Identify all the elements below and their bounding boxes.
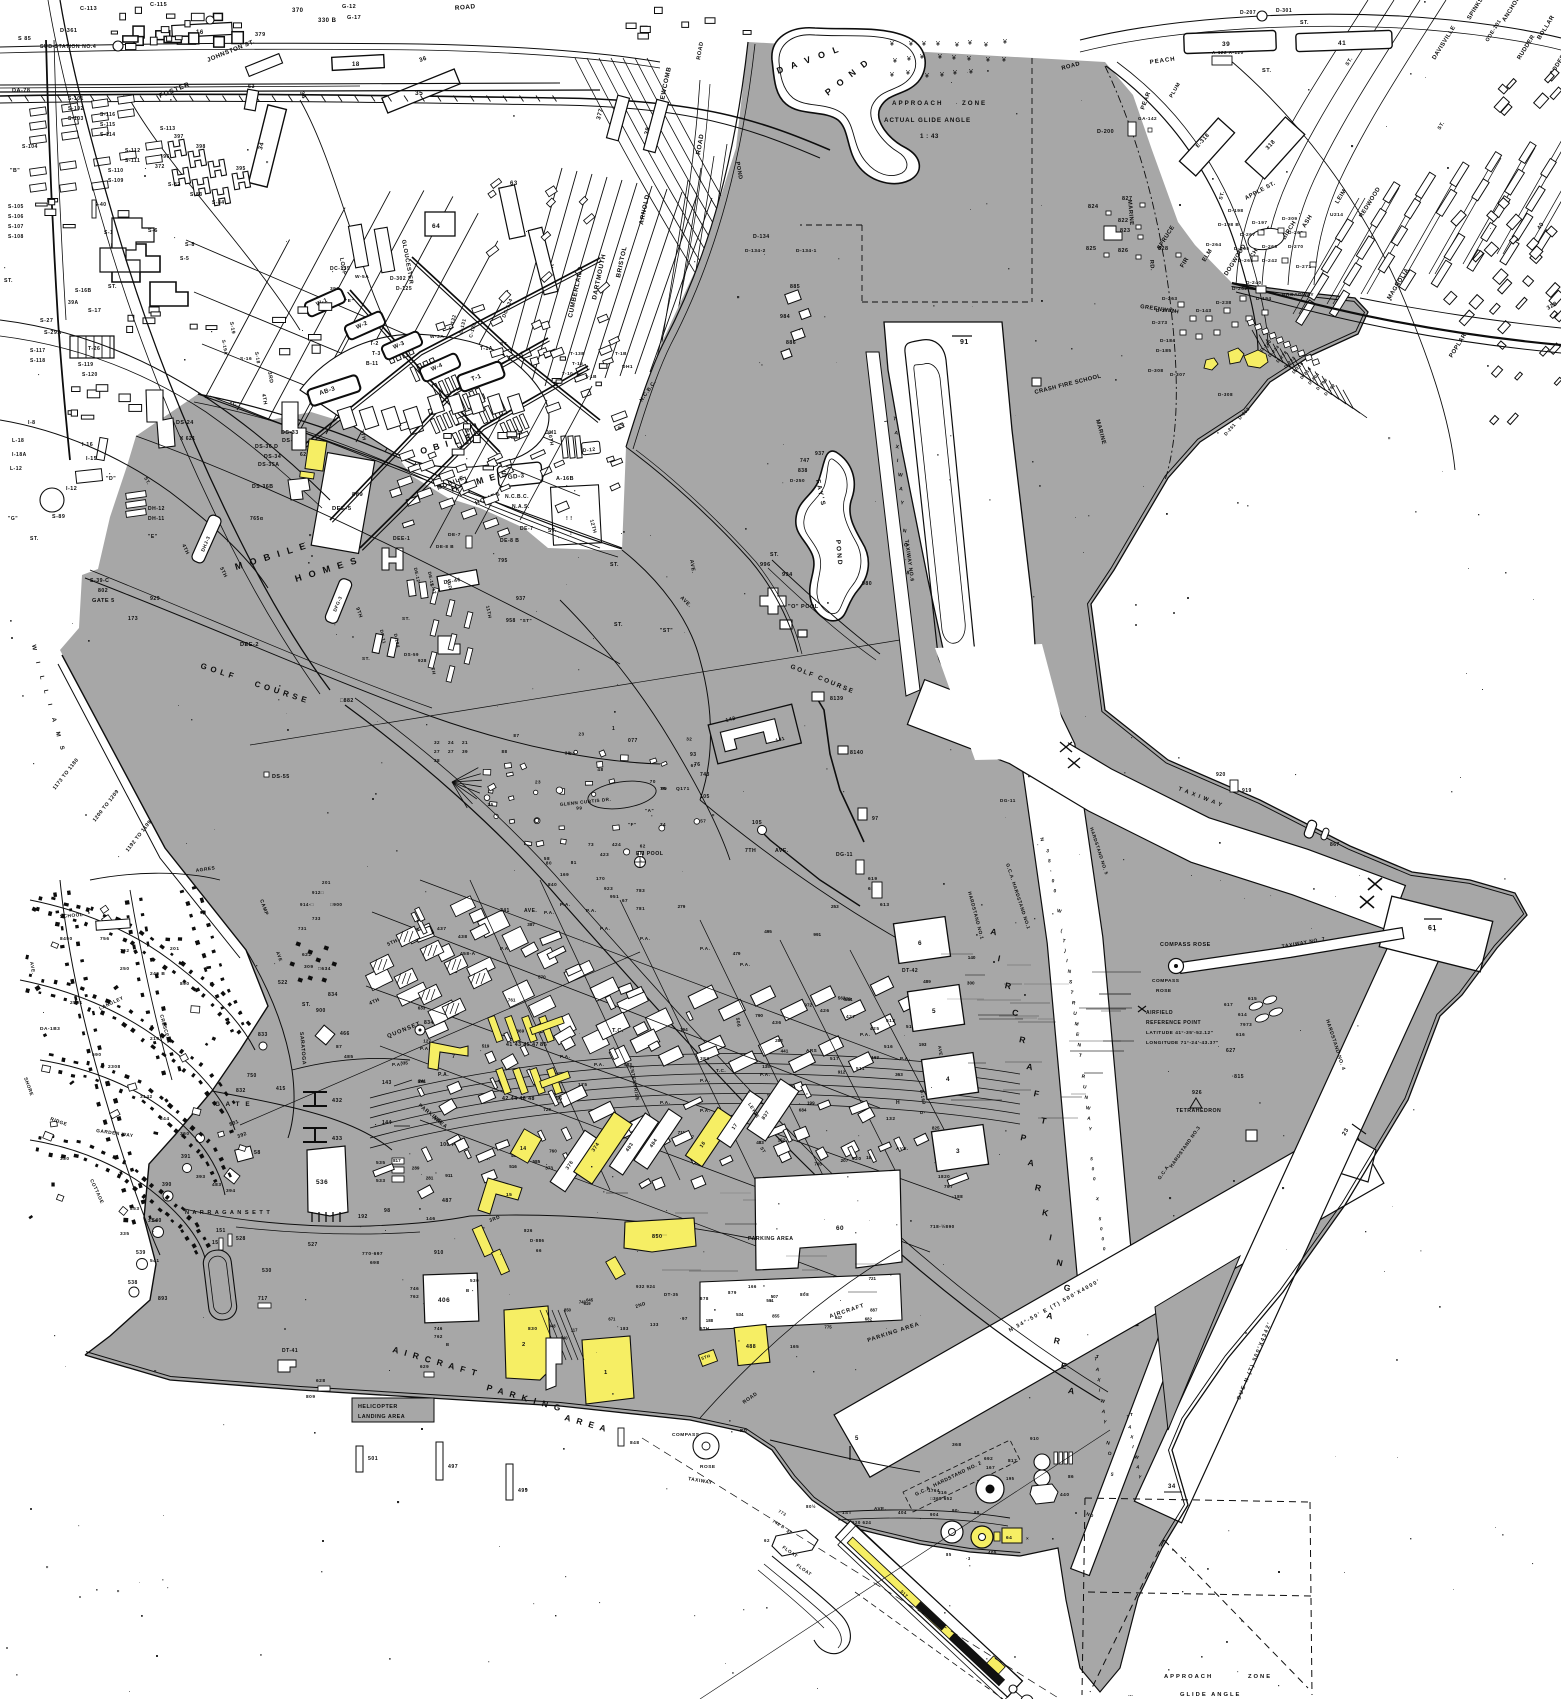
svg-text:4: 4: [946, 1076, 950, 1083]
svg-text:2308: 2308: [108, 1064, 121, 1070]
svg-text:D-134-2: D-134-2: [745, 248, 766, 254]
svg-text:D-194: D-194: [1256, 296, 1272, 302]
svg-text:AIRFIELD: AIRFIELD: [1146, 1010, 1173, 1016]
svg-text:N.A.S.: N.A.S.: [512, 504, 530, 510]
svg-text:619: 619: [868, 876, 878, 882]
svg-text:42 44 46 48: 42 44 46 48: [502, 1096, 535, 1102]
svg-text:516: 516: [884, 1044, 893, 1049]
svg-text:746: 746: [410, 1286, 419, 1291]
svg-text:692: 692: [984, 1456, 993, 1461]
svg-text:783: 783: [636, 888, 645, 893]
svg-text:S-109: S-109: [108, 178, 124, 184]
svg-text:3: 3: [956, 1148, 960, 1155]
svg-text:56: 56: [556, 1096, 563, 1102]
svg-text:D-198: D-198: [1228, 208, 1244, 214]
svg-text:405: 405: [988, 1550, 997, 1555]
svg-text:D-250: D-250: [790, 478, 805, 483]
svg-text:□882: □882: [340, 698, 354, 704]
svg-text:890: 890: [180, 981, 190, 987]
svg-text:87: 87: [336, 1044, 342, 1050]
svg-text:41: 41: [1338, 40, 1346, 47]
svg-text:14: 14: [520, 1146, 527, 1152]
svg-text:98: 98: [384, 1208, 391, 1214]
svg-text:D-271: D-271: [1296, 264, 1312, 270]
svg-text:T-13B: T-13B: [570, 351, 585, 356]
svg-text:U214: U214: [1330, 212, 1343, 218]
svg-text:S-89: S-89: [52, 514, 65, 520]
svg-text:T-26: T-26: [88, 346, 100, 352]
svg-text:21: 21: [462, 740, 468, 745]
svg-text:105: 105: [752, 820, 762, 826]
svg-text:790: 790: [755, 1013, 763, 1018]
svg-text:P.A.: P.A.: [560, 902, 571, 908]
svg-text:"E": "E": [345, 298, 354, 304]
svg-text:¥: ¥: [907, 56, 911, 63]
svg-text:DT-41: DT-41: [282, 1348, 298, 1354]
svg-text:GATE 5: GATE 5: [92, 598, 115, 604]
svg-text:406: 406: [438, 1297, 450, 1304]
svg-text:63: 63: [510, 181, 518, 187]
svg-text:538: 538: [128, 1280, 138, 1286]
svg-text:¥: ¥: [920, 54, 924, 61]
svg-text:437: 437: [437, 926, 447, 932]
svg-text:517: 517: [830, 1056, 839, 1061]
svg-text:832: 832: [236, 1088, 246, 1094]
svg-text:289: 289: [412, 1165, 420, 1170]
svg-text:507: 507: [771, 1294, 779, 1299]
svg-text:822: 822: [1118, 218, 1129, 224]
svg-text:7973: 7973: [1240, 1022, 1252, 1027]
svg-text:910: 910: [1030, 1436, 1039, 1441]
svg-text:57: 57: [700, 819, 706, 824]
svg-text:760: 760: [549, 1149, 557, 1154]
svg-text:62: 62: [640, 844, 646, 849]
svg-text:"B": "B": [10, 168, 20, 174]
svg-text:S-83: S-83: [190, 192, 203, 198]
svg-text:848: 848: [630, 1440, 640, 1446]
svg-text:143: 143: [382, 1080, 392, 1086]
svg-text:ST.: ST.: [108, 284, 117, 290]
svg-text:¥: ¥: [984, 42, 988, 49]
svg-text:D-267: D-267: [1240, 232, 1256, 238]
svg-text:432: 432: [332, 1098, 343, 1104]
svg-text:747: 747: [800, 458, 810, 464]
svg-text:245 B: 245 B: [150, 971, 165, 977]
svg-text:D-301: D-301: [1276, 8, 1292, 14]
svg-text:330 B: 330 B: [318, 18, 337, 24]
svg-text:958: 958: [506, 618, 516, 624]
svg-text:P.A.: P.A.: [420, 1046, 430, 1051]
svg-text:48: 48: [597, 767, 603, 772]
svg-text:S-107: S-107: [8, 224, 24, 230]
svg-text:P.A.: P.A.: [740, 962, 750, 967]
svg-text:S-113: S-113: [160, 126, 176, 132]
svg-text:132: 132: [886, 1116, 896, 1122]
svg-text:948: 948: [549, 1324, 557, 1329]
svg-text:ST.: ST.: [402, 616, 410, 621]
svg-text:201: 201: [322, 880, 331, 885]
svg-text:309: 309: [304, 964, 314, 970]
svg-text:¥: ¥: [955, 42, 959, 49]
svg-text:"ST": "ST": [520, 618, 532, 623]
svg-text:721: 721: [869, 1276, 877, 1281]
svg-text:501: 501: [368, 1456, 378, 1462]
svg-text:534: 534: [736, 1312, 744, 1317]
svg-text:495: 495: [764, 929, 772, 934]
svg-text:99: 99: [576, 806, 582, 811]
svg-text:570: 570: [538, 974, 546, 979]
svg-text:D-361: D-361: [60, 28, 77, 34]
svg-text:817: 817: [1008, 1458, 1017, 1463]
svg-text:522: 522: [278, 980, 288, 986]
svg-text:920: 920: [852, 1156, 862, 1162]
svg-text:199: 199: [807, 1100, 815, 1105]
svg-text:840: 840: [548, 882, 557, 887]
svg-text:T: T: [1130, 1412, 1133, 1417]
svg-text:5: 5: [932, 1008, 936, 1015]
svg-text:426: 426: [820, 1008, 830, 1014]
svg-text:ZONE: ZONE: [962, 100, 987, 107]
svg-text:ST.: ST.: [362, 656, 370, 661]
svg-text:590: 590: [92, 1052, 102, 1058]
svg-text:684: 684: [799, 1107, 807, 1112]
svg-text:ROSE: ROSE: [700, 1464, 716, 1470]
svg-text:886: 886: [786, 340, 796, 346]
svg-text:P.A.: P.A.: [760, 1072, 770, 1077]
svg-text:920: 920: [1216, 772, 1226, 778]
svg-text:D-308: D-308: [1148, 368, 1164, 374]
svg-text:D-266: D-266: [1262, 244, 1278, 250]
svg-text:…: …: [1128, 1692, 1134, 1698]
svg-text:165: 165: [790, 1344, 799, 1349]
svg-text:D-307: D-307: [1170, 372, 1186, 378]
svg-text:39: 39: [462, 749, 468, 754]
svg-text:¥: ¥: [909, 41, 913, 48]
svg-text:DS-34: DS-34: [264, 454, 281, 460]
svg-text:8450: 8450: [60, 936, 73, 942]
svg-text:195: 195: [1006, 1476, 1015, 1481]
svg-text:¥: ¥: [969, 69, 973, 76]
svg-text:627: 627: [1226, 1048, 1236, 1054]
svg-text:¥: ¥: [922, 41, 926, 48]
svg-text:1764: 1764: [928, 1488, 940, 1493]
svg-text:2: 2: [522, 1342, 526, 1348]
svg-text:825: 825: [932, 1125, 940, 1130]
svg-text:390: 390: [162, 1182, 172, 1188]
svg-text:DS-59: DS-59: [404, 652, 419, 657]
svg-text:910: 910: [434, 1250, 444, 1256]
svg-text:¥: ¥: [968, 40, 972, 47]
svg-text:80: 80: [546, 861, 552, 866]
svg-text:L-18: L-18: [12, 438, 24, 444]
svg-text:P.A.: P.A.: [700, 1078, 710, 1083]
svg-text:P.A.: P.A.: [500, 946, 510, 951]
svg-text:761: 761: [508, 998, 516, 1003]
svg-text:ST.: ST.: [1300, 20, 1309, 26]
svg-text:424: 424: [612, 842, 621, 847]
svg-text:RD.: RD.: [1148, 260, 1155, 272]
svg-text:415: 415: [276, 1086, 286, 1092]
svg-text:D-134-1: D-134-1: [796, 248, 817, 254]
svg-text:733: 733: [312, 916, 321, 921]
svg-text:5: 5: [855, 1436, 859, 1442]
svg-text:192: 192: [358, 1214, 368, 1220]
svg-text:S-116: S-116: [100, 112, 116, 118]
svg-text:483: 483: [756, 1140, 764, 1145]
svg-text:344: 344: [160, 1116, 170, 1122]
svg-text:DG-11: DG-11: [836, 852, 853, 858]
svg-text:APPROACH: APPROACH: [892, 100, 943, 107]
svg-text:972: 972: [804, 1003, 812, 1008]
svg-text:S 85: S 85: [18, 36, 31, 42]
svg-text:6: 6: [918, 940, 922, 947]
svg-text:ST.: ST.: [1262, 68, 1272, 74]
svg-text:834: 834: [328, 992, 338, 998]
svg-text:41 43 45 47: 41 43 45 47: [506, 1042, 539, 1048]
svg-text:B: B: [446, 1342, 450, 1347]
svg-text:765α: 765α: [250, 516, 264, 522]
svg-text:74: 74: [660, 822, 666, 827]
svg-text:393: 393: [196, 1174, 206, 1180]
svg-text:D-198 B: D-198 B: [1218, 222, 1239, 228]
svg-text:826: 826: [1118, 248, 1129, 254]
svg-text:335: 335: [400, 1060, 408, 1065]
svg-text:93: 93: [690, 752, 697, 758]
svg-text:717: 717: [258, 1296, 268, 1302]
svg-text:S-104: S-104: [22, 144, 38, 150]
svg-text:DS-36 D: DS-36 D: [255, 444, 278, 450]
svg-text:250: 250: [120, 966, 130, 972]
svg-text:919: 919: [1242, 788, 1252, 794]
svg-text:253: 253: [831, 904, 839, 909]
svg-text:ACTUAL GLIDE ANGLE: ACTUAL GLIDE ANGLE: [884, 117, 971, 124]
svg-text:¥: ¥: [890, 41, 894, 48]
svg-text:489: 489: [923, 979, 931, 984]
svg-text:194: 194: [680, 1027, 688, 1032]
svg-text:T.C.: T.C.: [716, 1068, 726, 1073]
svg-text:394: 394: [226, 1188, 236, 1194]
svg-text:466: 466: [340, 1031, 350, 1037]
svg-text:T-1B: T-1B: [585, 374, 597, 379]
svg-text:300: 300: [967, 980, 975, 985]
svg-text:27: 27: [434, 749, 440, 754]
svg-text:80½: 80½: [806, 1504, 816, 1509]
svg-text:135: 135: [762, 1064, 770, 1069]
svg-text:980: 980: [862, 581, 872, 587]
svg-text:□900: □900: [330, 902, 342, 907]
svg-text:I-12: I-12: [66, 486, 77, 492]
svg-text:584: 584: [845, 997, 853, 1002]
svg-text:·3: ·3: [966, 1556, 971, 1561]
svg-text:077: 077: [628, 738, 638, 744]
svg-text:850: 850: [564, 1307, 572, 1312]
svg-text:391: 391: [181, 1154, 191, 1160]
svg-text:530: 530: [262, 1268, 272, 1274]
svg-text:81: 81: [571, 860, 577, 865]
svg-text:DT-35: DT-35: [664, 1292, 679, 1297]
svg-text:485: 485: [344, 1054, 354, 1060]
svg-text:"G": "G": [8, 516, 18, 522]
svg-text:¥: ¥: [890, 72, 894, 79]
svg-text:390: 390: [330, 286, 340, 292]
svg-text:166: 166: [748, 1284, 757, 1289]
svg-text:"ST": "ST": [660, 628, 673, 634]
svg-text:809: 809: [306, 1394, 316, 1400]
svg-text:151: 151: [216, 1228, 226, 1234]
svg-text:S-117: S-117: [30, 348, 46, 354]
svg-text:DE-8 B: DE-8 B: [436, 544, 454, 549]
svg-text:441: 441: [781, 1048, 789, 1053]
svg-text:404: 404: [898, 1510, 907, 1515]
svg-text:7: 7: [452, 1054, 456, 1060]
svg-text:"C": "C": [230, 402, 240, 408]
svg-text:18: 18: [352, 62, 360, 68]
svg-text:RD: RD: [740, 1428, 747, 1433]
svg-text:387: 387: [527, 922, 535, 927]
svg-text:D-184: D-184: [1160, 338, 1176, 344]
svg-text:P.A.: P.A.: [560, 1054, 570, 1059]
svg-text:170: 170: [596, 876, 605, 881]
svg-text:DH-12: DH-12: [148, 506, 165, 512]
svg-text:743: 743: [700, 772, 710, 778]
svg-text:P.A.: P.A.: [586, 908, 597, 914]
svg-text:LONGITUDE 71°-24'-43.37": LONGITUDE 71°-24'-43.37": [1146, 1040, 1219, 1046]
svg-text:436: 436: [772, 1020, 782, 1026]
svg-text:731: 731: [298, 926, 307, 931]
svg-text:¥: ¥: [967, 56, 971, 63]
svg-text:·97: ·97: [680, 1316, 688, 1321]
svg-text:23: 23: [535, 779, 541, 784]
svg-text:ST.: ST.: [610, 562, 619, 568]
svg-text:"F": "F": [628, 822, 637, 827]
svg-text:ST.: ST.: [30, 536, 39, 542]
svg-text:T.C.: T.C.: [612, 1028, 624, 1034]
svg-text:923: 923: [604, 886, 613, 891]
svg-text:D-242: D-242: [1262, 258, 1278, 264]
svg-text:363: 363: [895, 1072, 903, 1077]
svg-text:A-122 A-120: A-122 A-120: [1212, 50, 1244, 55]
svg-text:"D": "D": [106, 476, 116, 482]
svg-text:DH-11: DH-11: [148, 516, 165, 522]
svg-text:912: 912: [838, 1070, 846, 1075]
svg-text:S-27: S-27: [40, 318, 53, 324]
svg-text:24: 24: [448, 740, 454, 745]
svg-text:527: 527: [308, 1242, 318, 1248]
svg-text:671: 671: [608, 1317, 616, 1322]
svg-text:"O" POOL: "O" POOL: [788, 604, 819, 610]
svg-text:75: 75: [660, 786, 666, 792]
svg-text:DH1: DH1: [622, 364, 633, 370]
svg-text:P.A.: P.A.: [860, 1032, 870, 1037]
svg-text:P.A.: P.A.: [438, 1072, 449, 1078]
svg-text:830: 830: [528, 1326, 538, 1332]
svg-text:395: 395: [236, 166, 246, 172]
svg-text:P.A.: P.A.: [544, 910, 554, 915]
svg-text:173: 173: [128, 616, 138, 622]
svg-text:S-82: S-82: [168, 182, 181, 188]
svg-text:210: 210: [150, 1036, 160, 1042]
svg-text:762: 762: [434, 1334, 443, 1339]
svg-text:193: 193: [919, 1042, 927, 1047]
svg-text:770·697: 770·697: [362, 1251, 383, 1257]
svg-text:D-262: D-262: [1232, 286, 1248, 292]
svg-text:1: 1: [612, 726, 615, 732]
svg-text:423: 423: [600, 852, 609, 857]
svg-text:H: H: [896, 1100, 900, 1106]
svg-text:533: 533: [376, 1178, 386, 1184]
svg-text:2501: 2501: [70, 1000, 83, 1006]
svg-text:DG-11: DG-11: [1000, 798, 1016, 803]
svg-text:REFERENCE POINT: REFERENCE POINT: [1146, 1020, 1201, 1026]
svg-text:S-16: S-16: [240, 356, 252, 362]
svg-text:ST.: ST.: [614, 622, 623, 628]
svg-text:615: 615: [1248, 996, 1257, 1001]
svg-text:746: 746: [434, 1326, 443, 1331]
svg-text:8139: 8139: [830, 696, 844, 702]
svg-text:117: 117: [571, 1327, 578, 1332]
svg-text:D-195: D-195: [1234, 246, 1250, 252]
svg-text:767: 767: [944, 1184, 953, 1189]
svg-text:G-17: G-17: [347, 15, 361, 21]
svg-text:878: 878: [700, 1296, 709, 1301]
svg-text:ARS: ARS: [806, 1048, 817, 1053]
svg-text:T-3: T-3: [372, 351, 381, 357]
svg-text:893: 893: [158, 1296, 168, 1302]
svg-text:D-302: D-302: [390, 276, 406, 282]
svg-text:398: 398: [196, 144, 206, 150]
svg-text:330: 330: [60, 1156, 70, 1162]
svg-text:DS-55: DS-55: [272, 774, 290, 780]
svg-text:□368 652: □368 652: [930, 1496, 953, 1501]
svg-text:"E": "E": [148, 534, 158, 540]
svg-text:614: 614: [1238, 1012, 1247, 1017]
svg-text:60: 60: [836, 1225, 844, 1232]
svg-text:¥: ¥: [1003, 39, 1007, 46]
svg-text:73: 73: [588, 842, 594, 847]
svg-text:DS-33: DS-33: [281, 430, 299, 436]
svg-text:S-118: S-118: [30, 358, 46, 364]
svg-text:I-8: I-8: [28, 420, 36, 426]
svg-text:39A: 39A: [68, 300, 79, 306]
svg-text:×: ×: [1026, 1536, 1029, 1541]
svg-text:438: 438: [458, 934, 468, 940]
svg-text:S-103: S-103: [68, 116, 84, 122]
svg-text:87: 87: [513, 733, 519, 738]
svg-text:DA-1B3: DA-1B3: [40, 1026, 60, 1032]
svg-text:DE-7: DE-7: [520, 526, 533, 532]
svg-text:91: 91: [960, 339, 969, 346]
svg-text:528: 528: [236, 1236, 246, 1242]
svg-text:D-273: D-273: [1152, 320, 1168, 326]
svg-text:AVE.: AVE.: [524, 908, 537, 914]
svg-text:S-114: S-114: [100, 132, 116, 138]
svg-text:86: 86: [1068, 1474, 1074, 1479]
svg-text:S-84: S-84: [212, 200, 225, 206]
svg-text:LANDING AREA: LANDING AREA: [358, 1414, 405, 1420]
svg-text:629: 629: [420, 1364, 429, 1369]
svg-text:335: 335: [120, 1231, 130, 1237]
svg-text:1820: 1820: [938, 1174, 950, 1179]
svg-text:X 621: X 621: [180, 436, 196, 442]
svg-text:DT-42: DT-42: [902, 968, 918, 974]
svg-text:T-10: T-10: [562, 371, 573, 376]
svg-text:817: 817: [393, 1158, 401, 1163]
svg-text:D-125: D-125: [396, 286, 412, 292]
svg-text:802: 802: [98, 588, 108, 594]
svg-text:511: 511: [856, 1066, 865, 1071]
svg-text:ST.: ST.: [302, 1002, 311, 1008]
svg-text:512: 512: [886, 1018, 896, 1024]
